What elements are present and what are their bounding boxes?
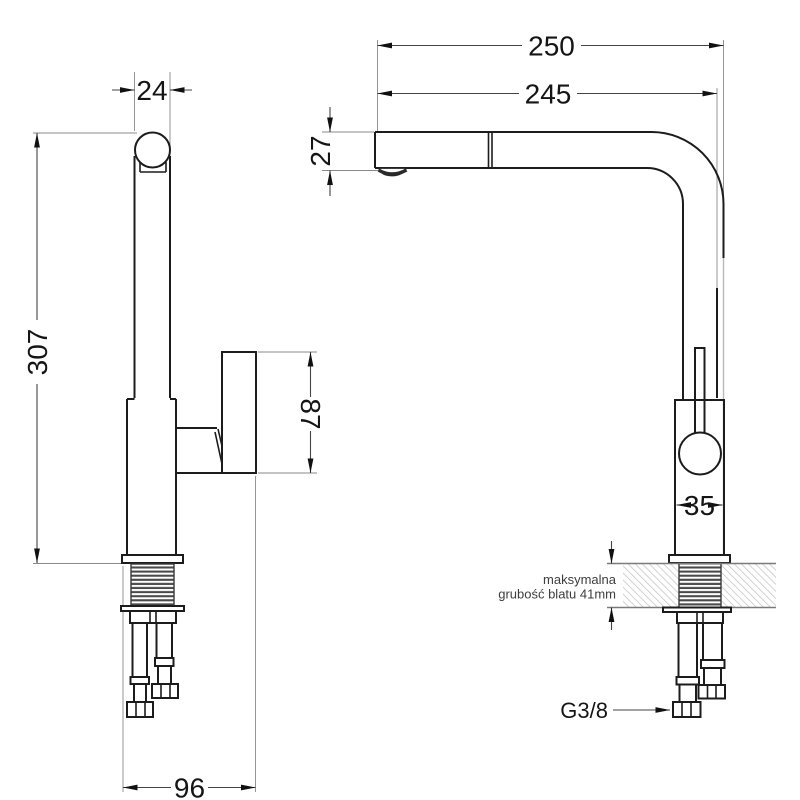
side-view: 24 307 87 96	[22, 72, 326, 800]
mounting-nut	[130, 611, 176, 623]
front-mounting-nut	[677, 612, 723, 623]
hose-nut	[127, 702, 153, 717]
dim-column-width: 24	[136, 75, 167, 106]
hose-nut	[673, 702, 701, 717]
drawing-canvas: 24 307 87 96	[0, 0, 800, 800]
aerator	[379, 168, 407, 176]
front-view-dimensions: 250 245 27 35 maksymalna grubość blatu 4…	[305, 31, 723, 723]
dim-total-height: 307	[22, 329, 53, 376]
pullout-spray-seam	[489, 132, 493, 168]
swivel-ball	[135, 133, 170, 168]
handle-arm	[176, 428, 222, 473]
countertop-note-line2: grubość blatu 41mm	[498, 587, 616, 602]
hose-nut	[152, 684, 178, 698]
dim-base-depth: 96	[174, 773, 205, 800]
front-supply-hoses	[673, 623, 725, 717]
front-view: 250 245 27 35 maksymalna grubość blatu 4…	[305, 31, 776, 723]
handle-ball	[679, 433, 721, 475]
dim-body-width: 35	[684, 490, 715, 521]
front-view-faucet-outline	[375, 132, 730, 563]
threaded-shank	[131, 564, 174, 606]
handle-lever	[222, 352, 256, 473]
countertop-note-line1: maksymalna	[543, 572, 617, 587]
side-view-faucet-outline	[121, 133, 256, 718]
front-view-extension-lines	[322, 40, 724, 288]
handle-stick	[695, 348, 705, 436]
faucet-technical-drawing: 24 307 87 96	[0, 0, 800, 800]
dim-spout-reach-inner: 245	[525, 79, 572, 110]
dim-spout-reach-outer: 250	[528, 31, 575, 62]
dim-spout-height: 27	[305, 135, 336, 166]
countertop-section	[607, 564, 776, 624]
supply-hoses	[127, 623, 178, 717]
base-flange	[122, 555, 183, 563]
thread-size-label: G3/8	[560, 698, 608, 723]
front-base-flange	[669, 555, 730, 563]
hose-nut	[699, 685, 726, 699]
shank-through-countertop	[679, 564, 721, 608]
dim-handle-length: 87	[295, 398, 326, 429]
